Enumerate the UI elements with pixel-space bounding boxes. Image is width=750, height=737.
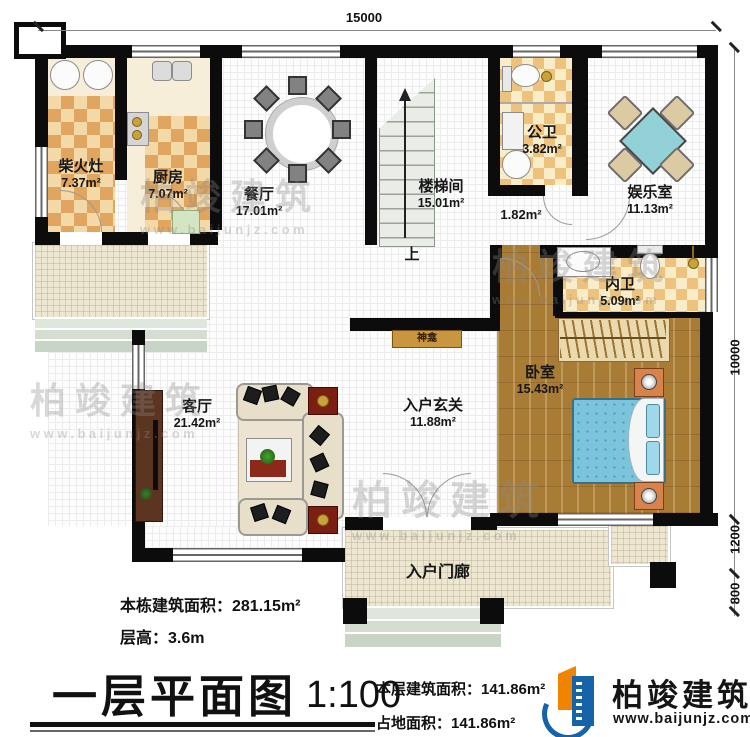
- door-gap: [60, 232, 102, 245]
- wall-gongwei-south: [488, 185, 545, 196]
- note-floor-area: 本层建筑面积：141.86m²: [376, 678, 545, 699]
- room-label-xuanguan: 入户玄关 11.88m²: [403, 397, 463, 431]
- toilet: [511, 64, 540, 87]
- dim-right-1200: 1200: [728, 517, 743, 563]
- dining-chair: [288, 164, 307, 183]
- floor-plan-canvas: 神龛 柴火灶 7.37m² 厨房 7.07m² 餐厅 17.01m² 楼梯间 1…: [0, 0, 750, 737]
- dining-chair: [244, 120, 263, 139]
- dining-chair: [288, 76, 307, 95]
- stairs-arrow-head: [399, 88, 411, 101]
- room-label-loutijian: 楼梯间 15.01m²: [418, 178, 465, 212]
- wood-stove: [50, 60, 80, 90]
- plan-title: 一层平面图: [52, 660, 297, 725]
- porch-column: [343, 598, 367, 624]
- window-top-1: [132, 45, 200, 58]
- dim-right-10000: 10000: [728, 328, 743, 388]
- tv-cabinet: [135, 390, 163, 522]
- wall-chu-can: [210, 58, 222, 230]
- dining-chair: [332, 120, 351, 139]
- wall-can-stairs: [365, 58, 377, 245]
- wall-gongwei-east: [572, 58, 588, 196]
- wall-gongwei-west: [488, 58, 500, 196]
- dim-top-15000: 15000: [330, 10, 398, 25]
- wall-right-top: [705, 58, 718, 250]
- plant-small: [140, 488, 152, 500]
- basin: [566, 251, 600, 272]
- room-label-menlang: 入户门廊: [406, 563, 470, 583]
- bath-divider: [500, 102, 572, 104]
- porch-floor: [345, 530, 611, 606]
- plant: [260, 449, 275, 464]
- stairs-arrow-line: [404, 100, 406, 238]
- side-table-deco: [317, 514, 329, 526]
- porch-floor-right: [611, 526, 668, 564]
- wall-mid-1: [490, 245, 502, 258]
- room-label-chufang: 厨房 7.07m²: [148, 169, 188, 203]
- note-floor-height: 层高：3.6m: [120, 624, 204, 648]
- room-label-corridor: 1.82m²: [500, 207, 541, 223]
- room-label-chaihuozao: 柴火灶 7.37m²: [58, 158, 103, 192]
- toilet: [640, 253, 660, 279]
- lamp: [641, 488, 657, 504]
- room-label-neiwei: 内卫 5.09m²: [600, 276, 640, 310]
- room-label-canting: 餐厅 17.01m²: [236, 186, 283, 220]
- tv: [153, 420, 158, 490]
- dim-line-top: [38, 30, 716, 31]
- kitchen-island: [172, 210, 200, 234]
- note-footprint-area: 占地面积：141.86m²: [376, 712, 515, 733]
- title-underline-thick: [30, 722, 375, 727]
- window-bedroom-south: [558, 513, 653, 526]
- window-top-3: [513, 45, 560, 58]
- terrace-floor: [35, 245, 207, 317]
- brand-url: www.baijunjz.com: [613, 711, 750, 727]
- kitchen-sink: [152, 61, 172, 81]
- window-top-2: [242, 45, 340, 58]
- burner: [132, 130, 142, 140]
- cushion: [262, 385, 280, 403]
- shower-head: [688, 258, 699, 269]
- brand-name: 柏竣建筑: [612, 670, 750, 715]
- window-living-south: [173, 548, 302, 562]
- shower: [502, 112, 524, 150]
- wall-bedroom-east: [700, 312, 713, 526]
- side-table-deco: [317, 395, 329, 407]
- porch-column: [480, 598, 504, 624]
- brand-logo-windows-icon: [576, 682, 582, 720]
- kitchen-sink: [172, 61, 192, 81]
- shrine-shelf: 神龛: [392, 330, 462, 348]
- wood-stove: [83, 60, 113, 90]
- wardrobe-hangers: [560, 320, 666, 358]
- porch-step: [345, 632, 501, 647]
- window-neiwei: [705, 250, 718, 312]
- room-label-gongwei: 公卫 3.82m²: [522, 124, 562, 158]
- room-label-woshi: 卧室 15.43m²: [517, 364, 564, 398]
- window-living-west: [132, 345, 145, 389]
- entry-door-gap: [383, 517, 471, 530]
- room-label-yuleshi: 娱乐室 11.13m²: [627, 184, 673, 218]
- window-left: [35, 147, 48, 217]
- burner: [132, 117, 142, 127]
- shrine-label: 神龛: [417, 333, 437, 344]
- toilet-tank: [502, 66, 512, 92]
- window-top-4: [602, 45, 697, 58]
- stairs-up-label: 上: [404, 246, 419, 264]
- porch-column: [650, 562, 676, 588]
- room-label-keting: 客厅 21.42m²: [174, 398, 221, 432]
- dim-right-800: 800: [728, 575, 743, 613]
- shower-pole: [692, 246, 694, 259]
- wardrobe-rod: [560, 337, 666, 339]
- terrace-step: [35, 339, 207, 352]
- title-underline-thin: [30, 730, 375, 732]
- wall-chai-chu: [115, 58, 127, 180]
- note-building-area: 本栋建筑面积：281.15m²: [120, 592, 301, 616]
- lamp: [641, 374, 657, 390]
- pillow: [646, 404, 660, 438]
- pillow: [646, 441, 660, 475]
- faucet-knob: [541, 71, 552, 82]
